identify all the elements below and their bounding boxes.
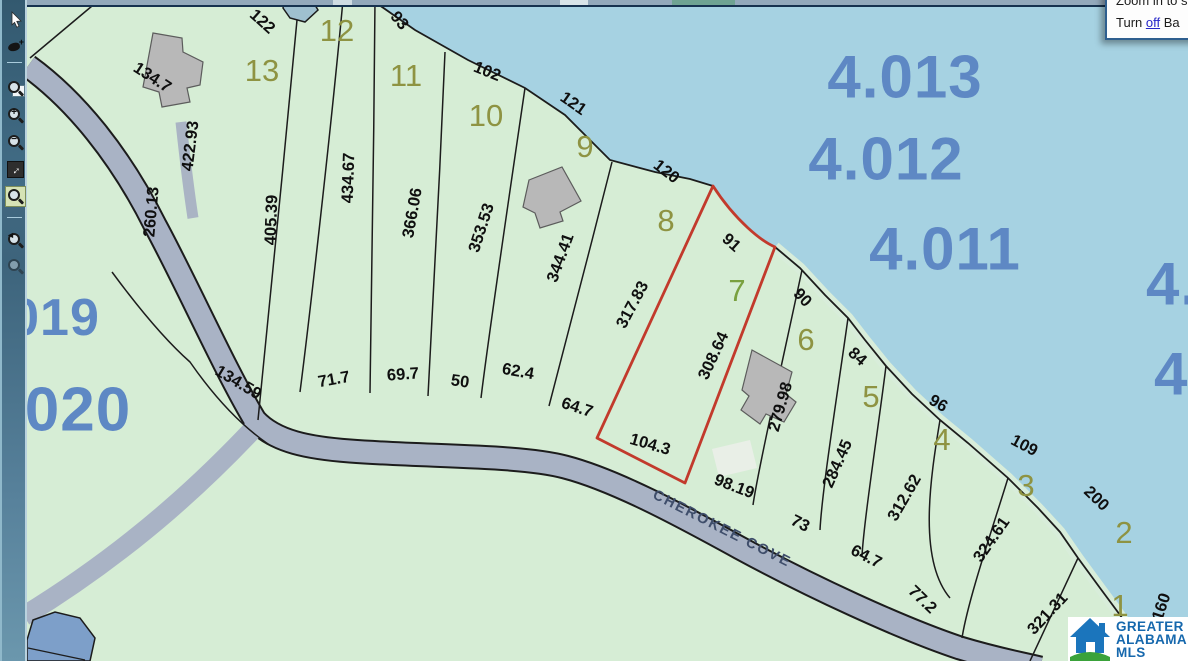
top-toolbar-clipped: [0, 0, 1105, 7]
map-canvas[interactable]: [0, 0, 1188, 661]
toolbar-divider: [7, 62, 22, 63]
zoom-selected-icon: [8, 189, 23, 204]
full-extent-tool-button[interactable]: ↔: [5, 159, 26, 180]
mls-logo-text: GREATER ALABAMA MLS: [1116, 620, 1187, 659]
greater-alabama-mls-logo: GREATER ALABAMA MLS: [1068, 617, 1188, 661]
select-arrow-icon: [8, 11, 24, 28]
map-hint-popup: Zoom in to se Turn off Ba: [1105, 0, 1188, 40]
top-toolbar-button-1[interactable]: [333, 0, 352, 5]
full-extent-icon: ↔: [7, 161, 24, 178]
mls-map-window: 134.7422.93260.13122405.39434.6793366.06…: [0, 0, 1188, 661]
zoom-out-icon: −: [8, 135, 23, 150]
map-tools-toolbar: + + − ↔: [0, 0, 27, 661]
next-extent-tool-button[interactable]: [5, 256, 26, 277]
zoom-in-tool-button[interactable]: +: [5, 105, 26, 126]
top-toolbar-button-3[interactable]: [672, 0, 735, 5]
zoom-window-tool-button[interactable]: [5, 78, 26, 99]
turn-off-basemap-link[interactable]: off: [1146, 15, 1160, 30]
zoom-window-icon: [8, 81, 23, 96]
zoom-out-tool-button[interactable]: −: [5, 132, 26, 153]
select-arrow-tool-button[interactable]: [5, 9, 26, 30]
toolbar-divider: [7, 217, 22, 218]
popup-basemap-text: Turn off Ba: [1116, 15, 1188, 30]
popup-zoom-hint-text: Zoom in to se: [1116, 0, 1188, 8]
previous-extent-tool-button[interactable]: ◄: [5, 230, 26, 251]
mls-house-logo-icon: [1068, 617, 1114, 661]
top-toolbar-button-2[interactable]: [560, 0, 588, 5]
zoom-in-icon: +: [8, 108, 23, 123]
sketch-tool-icon: +: [8, 40, 23, 52]
sketch-tool-button[interactable]: +: [5, 35, 26, 56]
zoom-selected-tool-button[interactable]: [5, 186, 26, 207]
previous-extent-icon: ◄: [8, 233, 23, 248]
next-extent-icon: [8, 259, 23, 274]
